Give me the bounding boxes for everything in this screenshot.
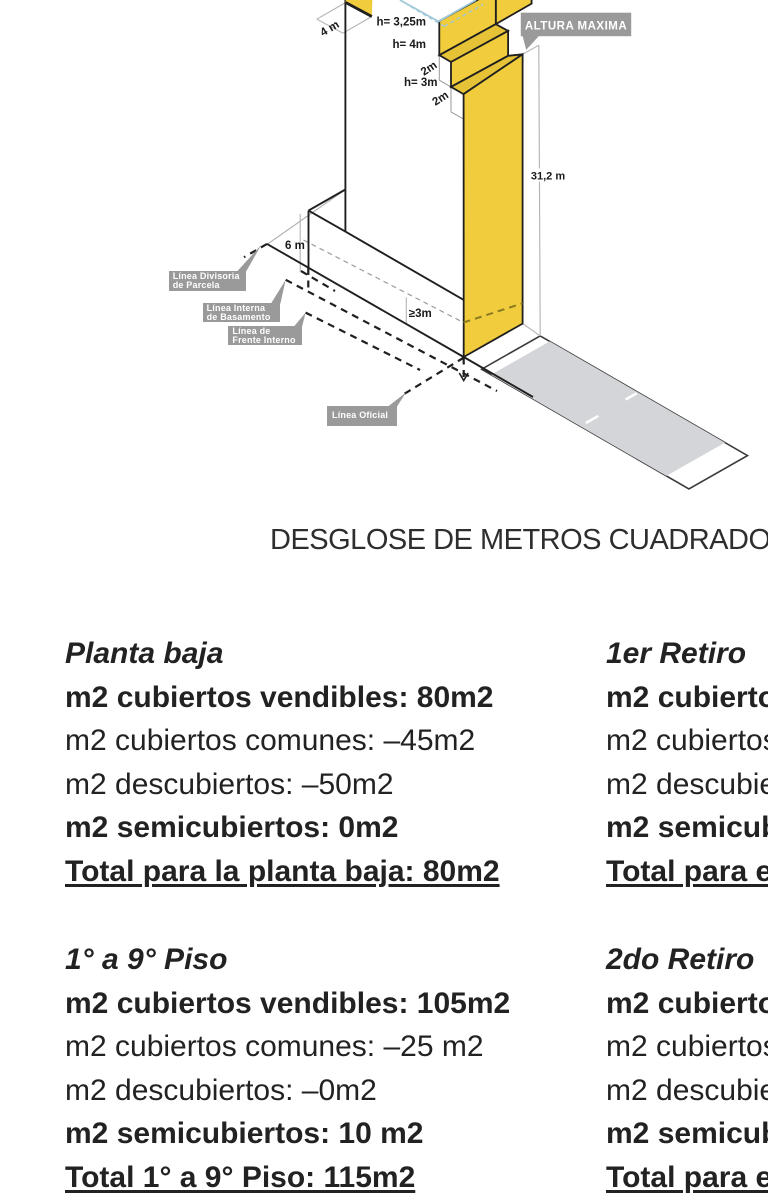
svg-text:h= 4m: h= 4m [392, 39, 426, 51]
svg-text:h= 3,25m: h= 3,25m [376, 16, 426, 28]
svg-text:2m: 2m [419, 59, 439, 78]
svg-text:ALTURA MAXIMA: ALTURA MAXIMA [525, 21, 627, 33]
svg-text:2m: 2m [431, 89, 451, 108]
svg-text:6 m: 6 m [285, 240, 305, 252]
svg-text:31,2 m: 31,2 m [531, 171, 565, 183]
svg-text:≥3m: ≥3m [409, 308, 432, 320]
svg-text:h= 3m: h= 3m [404, 77, 438, 89]
